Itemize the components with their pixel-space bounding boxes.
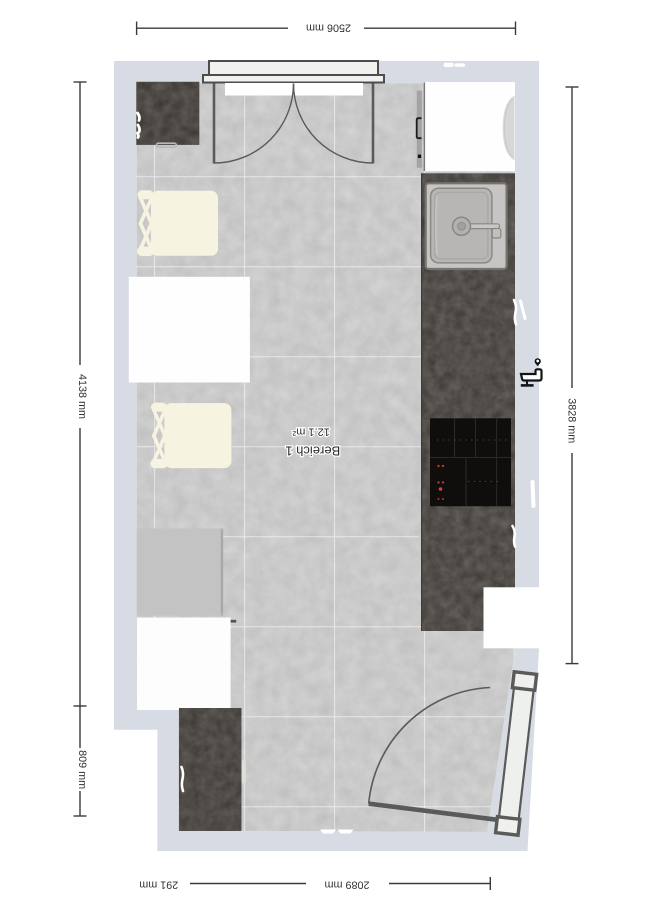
svg-text:809 mm: 809 mm [76, 750, 88, 789]
svg-text:2506 mm: 2506 mm [306, 22, 351, 34]
svg-text:2089 mm: 2089 mm [324, 878, 369, 890]
svg-text:Bereich 1: Bereich 1 [285, 444, 340, 459]
svg-text:291 mm: 291 mm [139, 878, 178, 890]
svg-text:4138 mm: 4138 mm [76, 374, 88, 419]
svg-text:3828 mm: 3828 mm [566, 398, 578, 443]
svg-text:12.1 m²: 12.1 m² [292, 426, 330, 438]
